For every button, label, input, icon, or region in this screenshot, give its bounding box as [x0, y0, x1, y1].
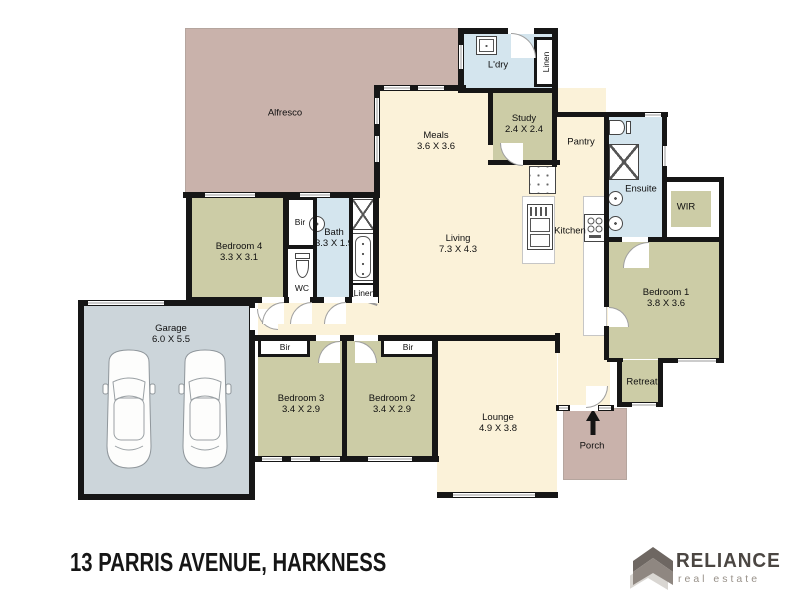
wall: [662, 177, 724, 182]
wall: [186, 197, 192, 303]
wall: [662, 182, 667, 242]
window: [375, 136, 379, 162]
wall: [617, 358, 622, 407]
ensuite-shower-icon: [609, 144, 639, 180]
room-label-bedroom2: Bedroom 23.4 X 2.9: [369, 393, 415, 415]
room-label-pantry: Pantry: [567, 136, 594, 147]
room-label-wir: WIR: [677, 201, 695, 212]
wall: [488, 93, 493, 145]
wall: [437, 335, 558, 341]
pantry-cabinet-icon: [529, 166, 556, 194]
wall: [488, 160, 560, 165]
wall: [719, 177, 724, 363]
window: [632, 403, 656, 407]
window: [645, 113, 661, 117]
wall: [78, 494, 255, 500]
car-icon: [177, 346, 233, 472]
room-label-alfresco: Alfresco: [268, 107, 302, 118]
room-alfresco-upper: [185, 28, 459, 92]
room-label-bir-bed2: Bir: [403, 342, 413, 352]
oven-icon: [527, 204, 553, 250]
room-alfresco-lower: [185, 88, 379, 198]
window: [368, 457, 412, 461]
wall: [249, 300, 255, 500]
room-label-bedroom1: Bedroom 13.8 X 3.6: [643, 287, 689, 309]
window: [205, 193, 255, 197]
room-label-linen-top: Linen: [541, 52, 551, 73]
shower-icon: [352, 199, 374, 230]
room-label-bir-bath: Bir: [295, 217, 305, 227]
window: [384, 86, 410, 90]
cooktop-icon: [584, 214, 605, 242]
room-label-living: Living7.3 X 4.3: [439, 233, 477, 255]
window: [559, 406, 568, 410]
room-label-meals: Meals3.6 X 3.6: [417, 130, 455, 152]
window: [678, 359, 716, 363]
window: [453, 493, 535, 497]
room-label-porch: Porch: [580, 440, 605, 451]
door-gap: [316, 335, 340, 341]
wall: [342, 335, 347, 462]
room-label-retreat: Retreat: [626, 376, 657, 387]
room-label-kitchen: Kitchen: [554, 225, 586, 236]
room-bath: [316, 197, 351, 303]
wall: [432, 335, 438, 462]
room-label-wc: WC: [295, 283, 309, 293]
car-icon: [101, 346, 157, 472]
wall: [648, 237, 724, 242]
ensuite-toilet-bowl-icon: [609, 120, 625, 135]
door-gap: [250, 308, 255, 330]
window: [459, 45, 463, 69]
wall: [458, 88, 558, 93]
wall: [313, 197, 317, 303]
window: [418, 86, 444, 90]
room-label-bath: Bath3.3 X 1.9: [315, 227, 353, 249]
wall: [604, 237, 622, 242]
floorplan-page: Alfresco Meals3.6 X 3.6 Living7.3 X 4.3 …: [0, 0, 800, 600]
window: [320, 457, 340, 461]
wall: [604, 112, 609, 307]
wall: [604, 326, 609, 360]
room-label-ensuite: Ensuite: [625, 183, 657, 194]
wall: [373, 197, 379, 303]
window: [663, 146, 667, 166]
wall: [288, 245, 316, 249]
ensuite-sink-icon: [608, 216, 623, 231]
reliance-logo-icon: [630, 544, 676, 590]
room-label-lounge: Lounge4.9 X 3.8: [479, 412, 517, 434]
window: [300, 193, 330, 197]
wall: [78, 300, 84, 500]
floor-plan: Alfresco Meals3.6 X 3.6 Living7.3 X 4.3 …: [0, 0, 800, 520]
wall: [283, 197, 288, 303]
reliance-logo-tagline: real estate: [678, 573, 760, 585]
window: [88, 301, 164, 305]
room-label-bedroom3: Bedroom 33.4 X 2.9: [278, 393, 324, 415]
room-label-ldry: L'dry: [488, 59, 508, 70]
wc-toilet-tank-icon: [295, 253, 310, 259]
ensuite-sink-icon: [608, 191, 623, 206]
entry-arrow-icon: [583, 407, 603, 439]
window: [262, 457, 282, 461]
reliance-logo-text: RELIANCE: [676, 550, 781, 573]
room-label-study: Study2.4 X 2.4: [505, 113, 543, 135]
window: [375, 98, 379, 124]
wall: [349, 197, 353, 303]
wall: [552, 28, 558, 117]
laundry-tub-icon: [476, 36, 497, 55]
room-label-bedroom4: Bedroom 43.3 X 3.1: [216, 241, 262, 263]
wall: [552, 112, 557, 167]
room-label-garage: Garage6.0 X 5.5: [152, 323, 190, 345]
window: [599, 406, 611, 410]
property-address: 13 PARRIS AVENUE, HARKNESS: [70, 547, 386, 578]
room-label-bir-bed3: Bir: [280, 342, 290, 352]
bathtub-icon: [352, 233, 374, 281]
door-gap: [354, 335, 378, 341]
window: [291, 457, 310, 461]
door-gap: [352, 297, 378, 303]
ensuite-toilet-tank-icon: [626, 121, 631, 134]
wall: [658, 358, 663, 407]
